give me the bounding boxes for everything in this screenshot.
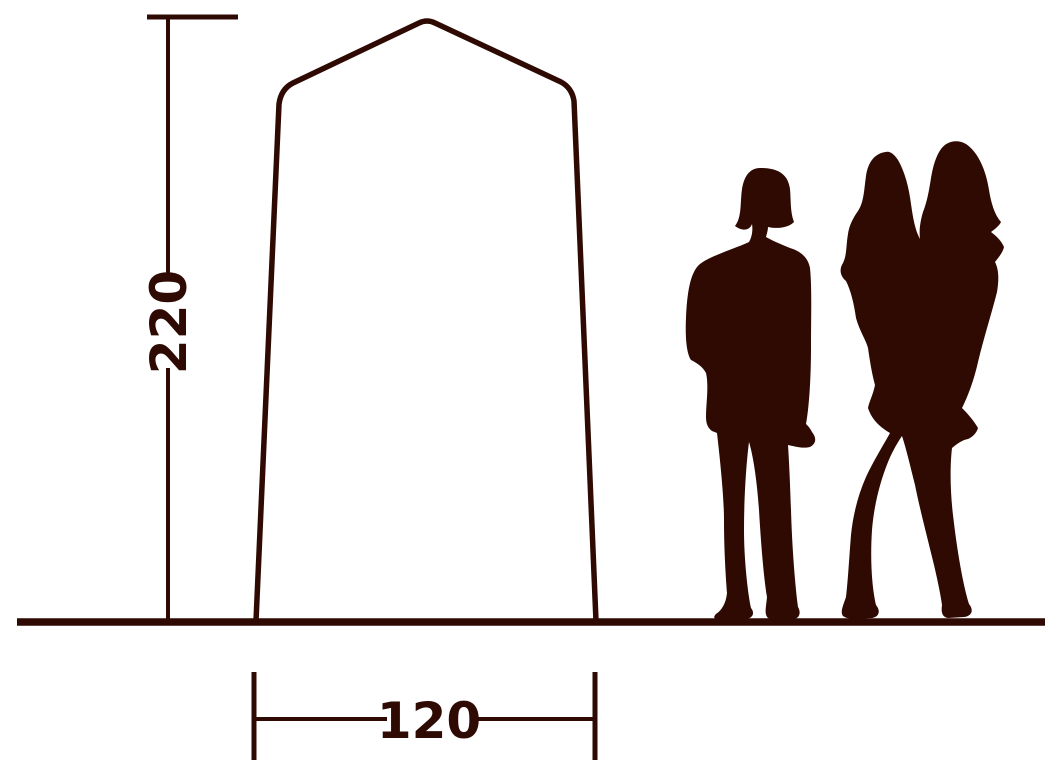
height-dimension-label: 220	[140, 270, 198, 374]
diagram-canvas: 220 120	[0, 0, 1060, 772]
tent-size-diagram: 220 120	[0, 0, 1060, 772]
width-dimension-label: 120	[377, 692, 481, 750]
